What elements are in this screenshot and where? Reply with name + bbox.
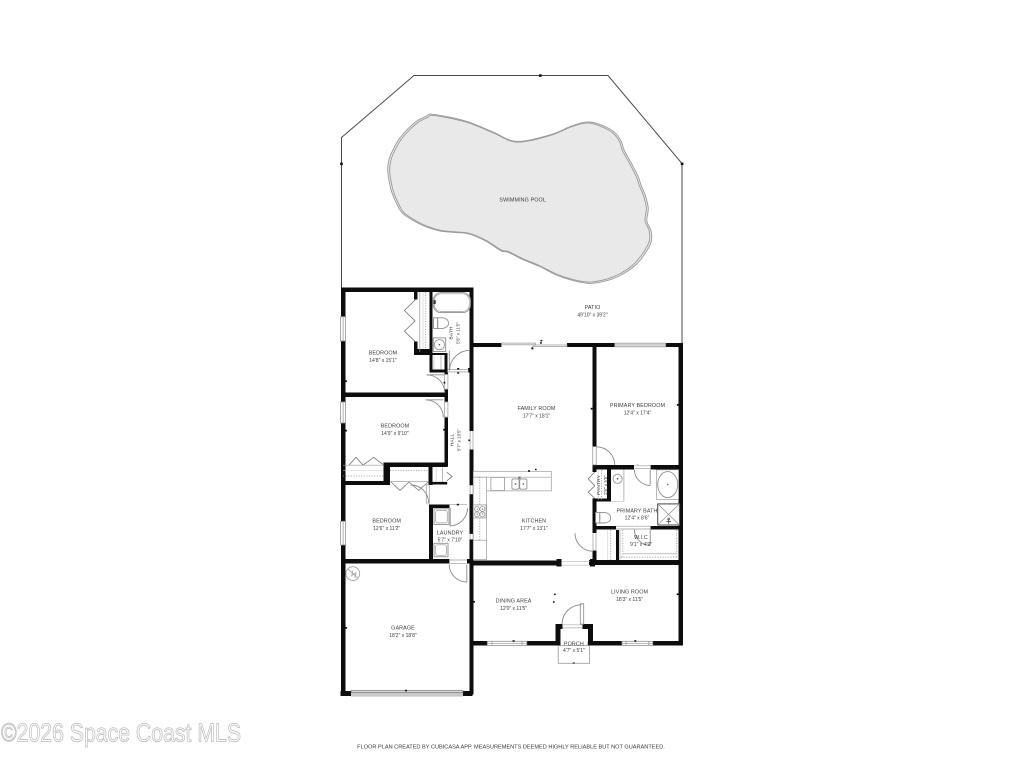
svg-text:12'4" x 17'4": 12'4" x 17'4" xyxy=(624,411,652,417)
svg-text:W.I.C: W.I.C xyxy=(634,535,648,541)
svg-text:©2026 Space Coast MLS: ©2026 Space Coast MLS xyxy=(1,718,241,748)
svg-text:49'10" x 39'2": 49'10" x 39'2" xyxy=(577,313,607,319)
svg-text:5'7" x 19'5": 5'7" x 19'5" xyxy=(457,429,462,452)
svg-text:PRIMARY BATH: PRIMARY BATH xyxy=(616,509,657,515)
svg-text:LIVING ROOM: LIVING ROOM xyxy=(611,590,648,596)
svg-text:PRIMARY BEDROOM: PRIMARY BEDROOM xyxy=(610,403,666,409)
svg-text:DINING AREA: DINING AREA xyxy=(496,598,532,604)
svg-text:BEDROOM: BEDROOM xyxy=(372,519,401,525)
svg-text:18'2" x 18'8": 18'2" x 18'8" xyxy=(389,633,417,639)
svg-text:14'9" x 9'10": 14'9" x 9'10" xyxy=(381,431,409,437)
svg-text:14'8" x 15'1": 14'8" x 15'1" xyxy=(369,358,397,364)
svg-text:12'0" x 11'5": 12'0" x 11'5" xyxy=(500,606,527,612)
svg-text:17'7" x 13'1": 17'7" x 13'1" xyxy=(520,526,548,532)
svg-text:BATH: BATH xyxy=(449,326,455,339)
svg-text:HALL: HALL xyxy=(450,434,456,447)
svg-text:FAMILY ROOM: FAMILY ROOM xyxy=(517,406,555,412)
svg-text:9'1" x 4'9": 9'1" x 4'9" xyxy=(630,542,652,548)
svg-text:SWIMMING POOL: SWIMMING POOL xyxy=(499,198,546,204)
svg-text:LAUNDRY: LAUNDRY xyxy=(437,531,464,537)
svg-text:5'6" x 11'5": 5'6" x 11'5" xyxy=(455,322,460,344)
svg-text:5'7" x 7'10": 5'7" x 7'10" xyxy=(438,538,463,544)
svg-text:BEDROOM: BEDROOM xyxy=(381,424,410,430)
svg-text:18'3" x 11'5": 18'3" x 11'5" xyxy=(616,597,643,603)
svg-text:4'7" x 5'1": 4'7" x 5'1" xyxy=(563,648,585,654)
svg-text:PORCH: PORCH xyxy=(564,641,584,647)
svg-text:PATIO: PATIO xyxy=(585,305,601,311)
svg-text:12'4" x 8'6": 12'4" x 8'6" xyxy=(625,516,650,522)
svg-text:FLOOR PLAN CREATED BY CUBICASA: FLOOR PLAN CREATED BY CUBICASA APP. MEAS… xyxy=(357,745,665,751)
svg-text:2'6" x 5'5": 2'6" x 5'5" xyxy=(603,475,608,495)
svg-text:KITCHEN: KITCHEN xyxy=(522,519,546,525)
svg-text:12'6" x 11'2": 12'6" x 11'2" xyxy=(373,526,400,532)
svg-text:17'7" x 18'1": 17'7" x 18'1" xyxy=(523,414,551,420)
svg-text:GARAGE: GARAGE xyxy=(391,626,415,632)
svg-text:BEDROOM: BEDROOM xyxy=(369,351,398,357)
svg-text:PANTRY: PANTRY xyxy=(596,474,602,495)
